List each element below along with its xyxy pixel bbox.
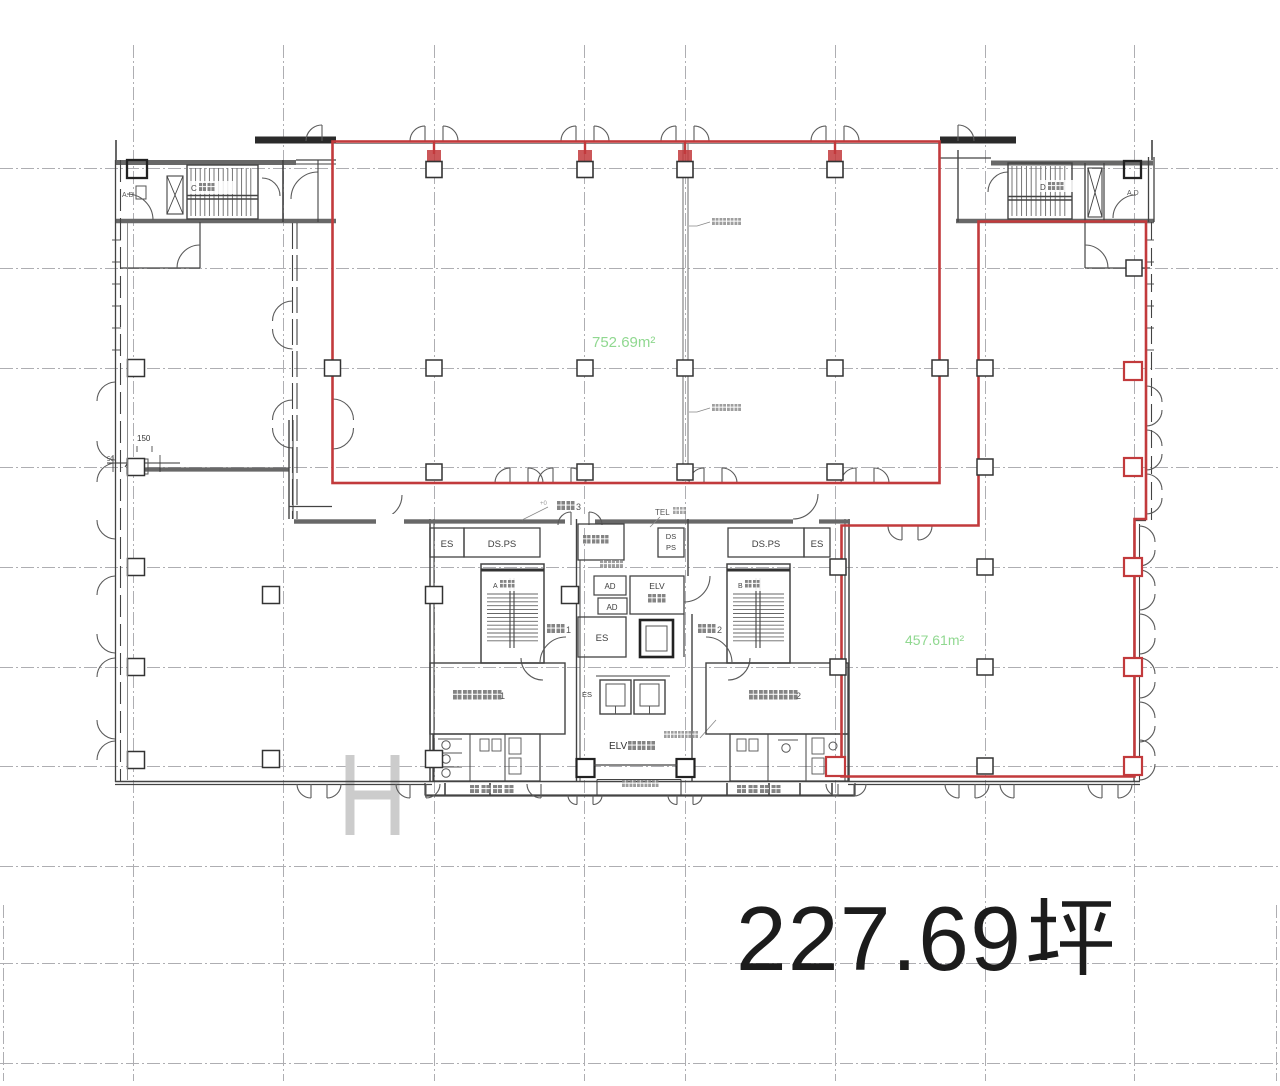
svg-text:AD: AD <box>604 582 615 591</box>
svg-text:150: 150 <box>137 434 151 443</box>
svg-text:1: 1 <box>566 625 571 635</box>
svg-text:A.D: A.D <box>122 192 134 199</box>
svg-text:ES: ES <box>441 539 454 550</box>
svg-text:2: 2 <box>717 625 722 635</box>
svg-text:ES: ES <box>582 690 592 699</box>
svg-text:227.69: 227.69 <box>736 889 1022 990</box>
svg-text:DS: DS <box>666 532 676 541</box>
svg-text:ELV: ELV <box>649 581 665 591</box>
svg-text:ES: ES <box>811 539 824 550</box>
svg-text:C: C <box>191 184 197 193</box>
svg-text:DS.PS: DS.PS <box>488 539 517 550</box>
svg-text:AD: AD <box>606 603 617 612</box>
svg-text:3: 3 <box>576 502 581 512</box>
svg-text:ES: ES <box>596 633 609 644</box>
svg-text:A: A <box>493 583 498 590</box>
svg-text:+0: +0 <box>540 501 548 507</box>
svg-text:2: 2 <box>796 691 801 701</box>
svg-text:752.69m²: 752.69m² <box>592 334 655 351</box>
svg-text:1: 1 <box>500 691 505 701</box>
svg-text:TEL: TEL <box>655 508 670 517</box>
svg-text:B: B <box>738 583 743 590</box>
svg-text:D: D <box>1040 183 1046 192</box>
svg-text:DS.PS: DS.PS <box>752 539 781 550</box>
svg-text:457.61m²: 457.61m² <box>905 632 964 648</box>
svg-text:ELV: ELV <box>609 741 627 752</box>
svg-text:PS: PS <box>666 543 676 552</box>
